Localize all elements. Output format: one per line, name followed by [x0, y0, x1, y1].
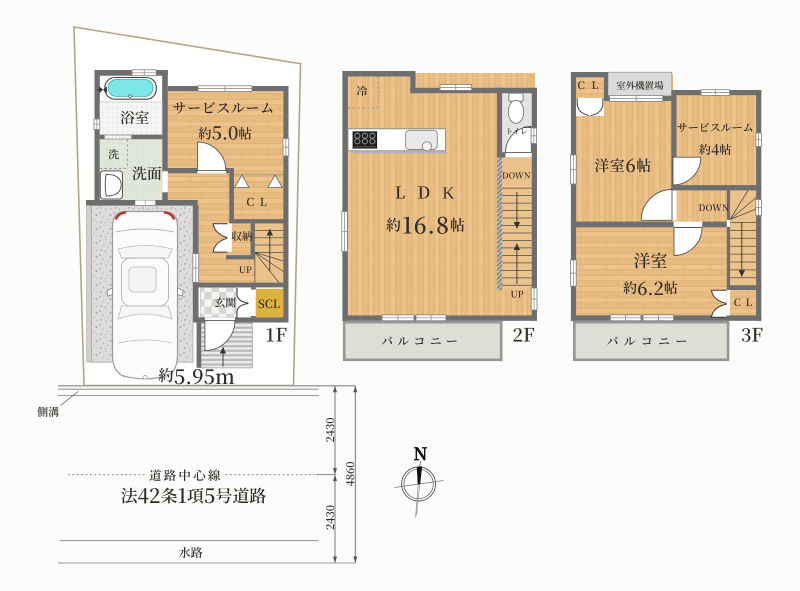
svg-text:約5.95m: 約5.95m: [158, 360, 235, 389]
svg-text:C L: C L: [577, 78, 600, 93]
svg-text:DOWN: DOWN: [502, 170, 531, 182]
svg-text:収納: 収納: [231, 229, 252, 244]
svg-text:2430: 2430: [322, 417, 338, 442]
svg-text:玄関: 玄関: [214, 295, 236, 311]
svg-text:法42条1項5号道路: 法42条1項5号道路: [120, 479, 266, 508]
svg-text:1F: 1F: [265, 321, 288, 347]
svg-text:L D K: L D K: [395, 179, 459, 203]
svg-text:サービスルーム: サービスルーム: [172, 98, 274, 118]
svg-text:洗面: 洗面: [132, 163, 162, 184]
svg-text:洋室6帖: 洋室6帖: [594, 152, 651, 178]
svg-text:側溝: 側溝: [37, 404, 59, 420]
svg-text:冷: 冷: [357, 83, 368, 99]
svg-text:約4帖: 約4帖: [699, 138, 731, 159]
svg-text:2430: 2430: [322, 505, 338, 530]
svg-text:UP: UP: [239, 263, 252, 276]
svg-text:浴室: 浴室: [120, 107, 149, 128]
svg-text:水路: 水路: [179, 544, 203, 561]
svg-text:約5.0帖: 約5.0帖: [198, 120, 252, 146]
svg-text:バルコニー: バルコニー: [381, 332, 462, 349]
svg-text:SCL: SCL: [258, 296, 280, 312]
svg-text:C L: C L: [734, 294, 753, 309]
svg-text:約6.2帖: 約6.2帖: [623, 275, 678, 301]
svg-text:室外機置場: 室外機置場: [616, 78, 664, 92]
svg-text:洋室: 洋室: [634, 247, 668, 272]
svg-text:3F: 3F: [741, 321, 764, 347]
svg-text:サービスルーム: サービスルーム: [677, 120, 754, 136]
svg-text:4860: 4860: [342, 461, 358, 486]
svg-text:C L: C L: [246, 194, 268, 210]
svg-text:トイレ: トイレ: [506, 126, 528, 137]
svg-text:2F: 2F: [513, 321, 536, 347]
svg-text:DOWN: DOWN: [698, 201, 729, 214]
svg-text:UP: UP: [511, 287, 524, 300]
svg-text:バルコニー: バルコニー: [606, 332, 692, 349]
svg-text:洗: 洗: [108, 147, 119, 163]
